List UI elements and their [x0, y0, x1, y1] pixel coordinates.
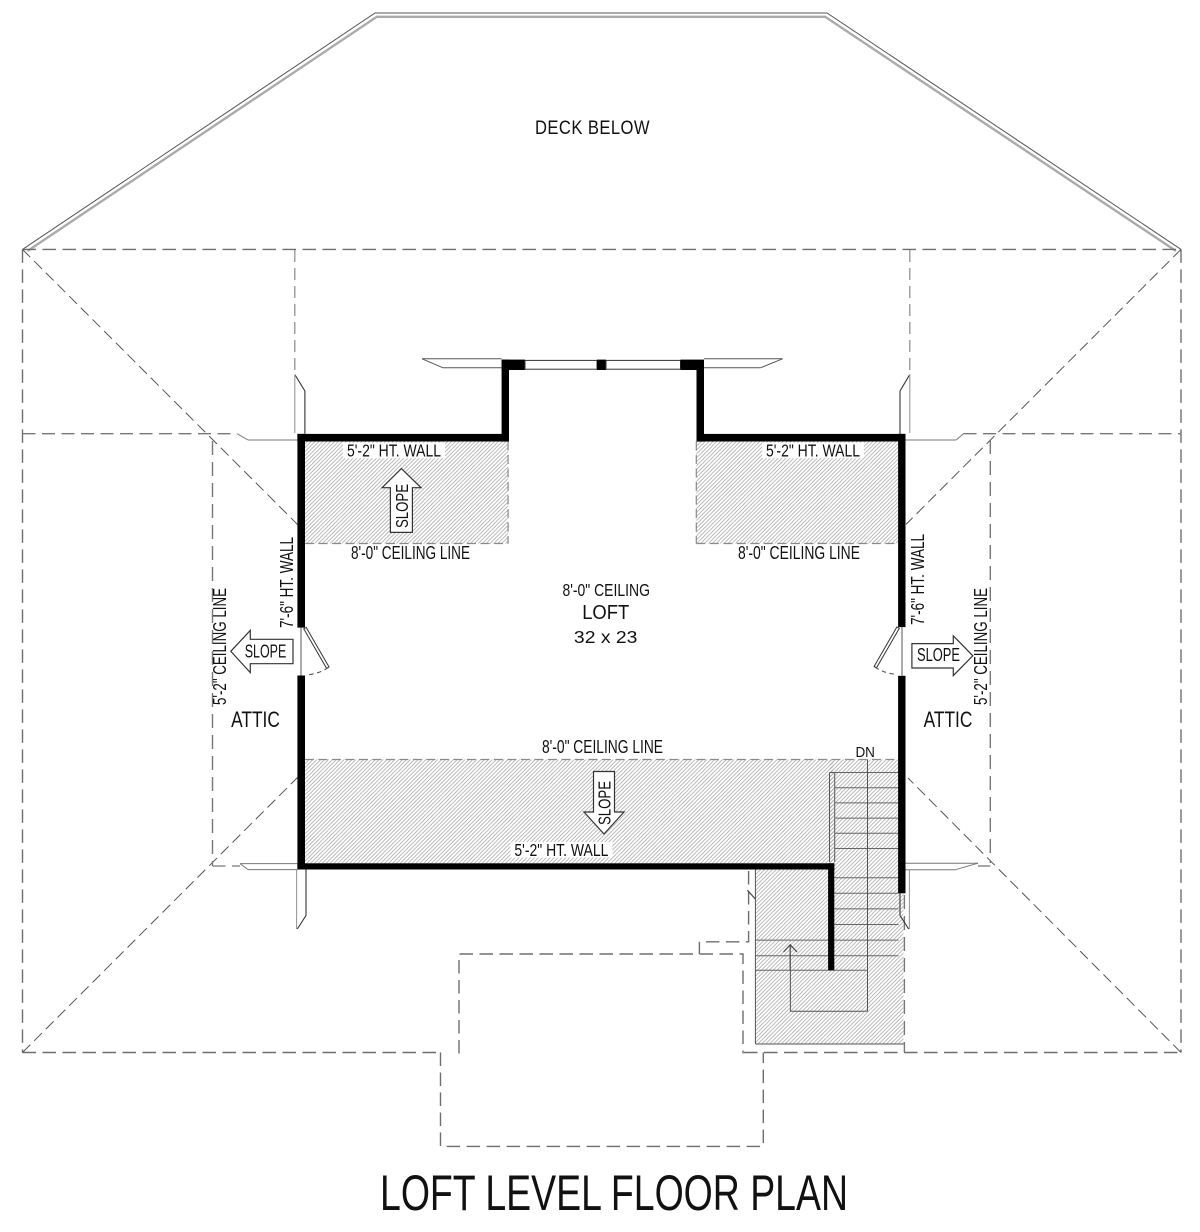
svg-text:SLOPE: SLOPE: [595, 781, 615, 825]
svg-text:7'-6" HT. WALL: 7'-6" HT. WALL: [277, 537, 297, 628]
svg-text:SLOPE: SLOPE: [392, 484, 412, 528]
svg-text:SLOPE: SLOPE: [245, 642, 287, 662]
svg-text:5'-2" CEILING LINE: 5'-2" CEILING LINE: [210, 588, 230, 705]
svg-text:5'-2" CEILING LINE: 5'-2" CEILING LINE: [971, 588, 991, 705]
svg-text:5'-2" HT. WALL: 5'-2" HT. WALL: [347, 441, 441, 461]
svg-text:7'-6" HT. WALL: 7'-6" HT. WALL: [908, 534, 928, 625]
svg-text:5'-2" HT. WALL: 5'-2" HT. WALL: [766, 441, 860, 461]
svg-text:32 x 23: 32 x 23: [574, 627, 638, 647]
svg-text:8'-0" CEILING LINE: 8'-0" CEILING LINE: [738, 543, 860, 563]
svg-text:8'-0" CEILING: 8'-0" CEILING: [562, 580, 650, 600]
svg-text:ATTIC: ATTIC: [924, 707, 973, 732]
svg-text:8'-0" CEILING LINE: 8'-0" CEILING LINE: [351, 543, 470, 563]
svg-text:LOFT LEVEL FLOOR PLAN: LOFT LEVEL FLOOR PLAN: [380, 1165, 848, 1221]
svg-text:SLOPE: SLOPE: [917, 645, 960, 665]
svg-text:DECK BELOW: DECK BELOW: [535, 118, 650, 139]
svg-text:ATTIC: ATTIC: [231, 707, 280, 732]
svg-text:LOFT: LOFT: [582, 602, 629, 624]
svg-text:8'-0" CEILING LINE: 8'-0" CEILING LINE: [542, 737, 663, 757]
svg-text:5'-2" HT. WALL: 5'-2" HT. WALL: [514, 840, 608, 860]
svg-text:DN: DN: [855, 745, 875, 761]
